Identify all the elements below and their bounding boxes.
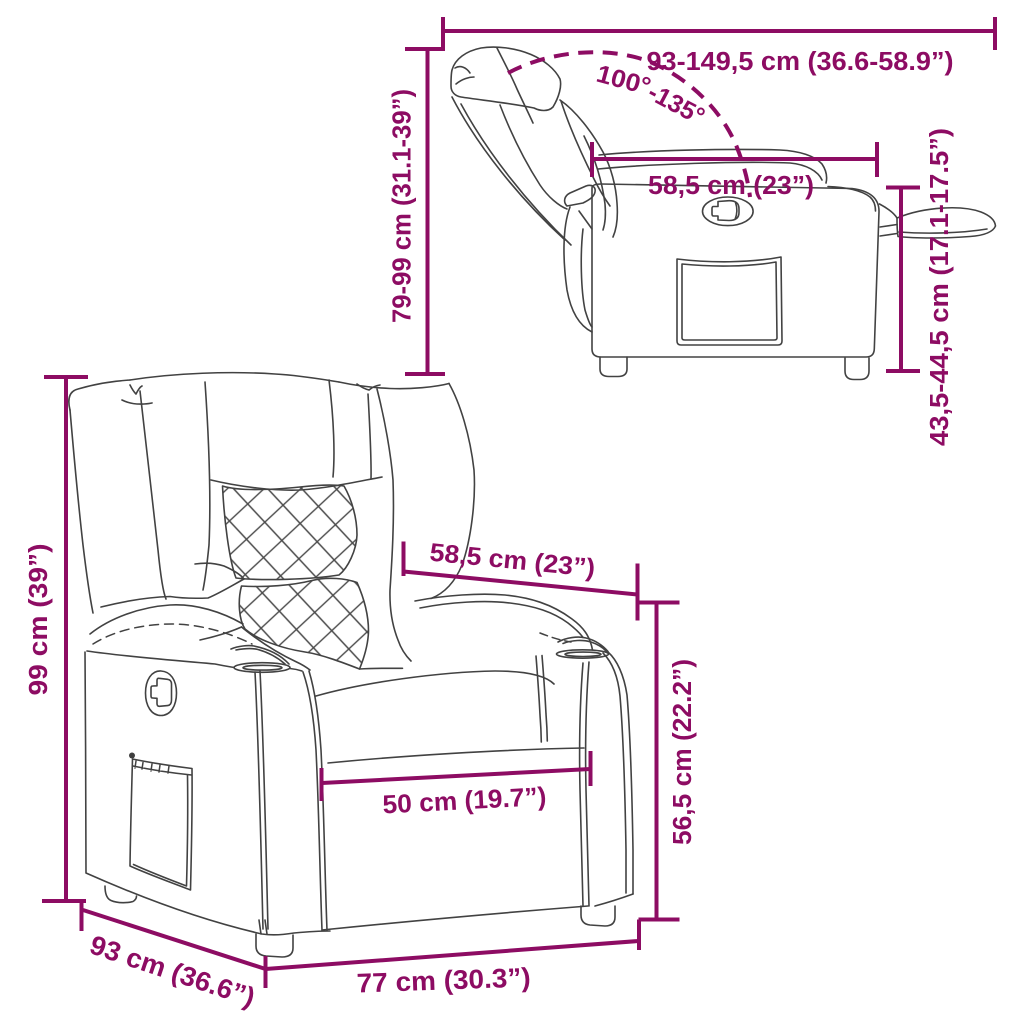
svg-text:93 cm (36.6”): 93 cm (36.6”) [86, 930, 259, 1013]
svg-text:79-99 cm (31.1-39”): 79-99 cm (31.1-39”) [389, 89, 417, 323]
svg-text:43,5-44,5 cm (17.1-17.5”): 43,5-44,5 cm (17.1-17.5”) [926, 128, 954, 446]
svg-text:50 cm (19.7”): 50 cm (19.7”) [382, 781, 547, 820]
svg-text:100°: 100° [593, 60, 653, 101]
svg-text:93-149,5 cm (36.6-58.9”): 93-149,5 cm (36.6-58.9”) [647, 48, 954, 76]
svg-text:-135°: -135° [643, 78, 709, 131]
svg-text:99 cm (39”): 99 cm (39”) [25, 544, 53, 696]
svg-text:56,5 cm (22.2”): 56,5 cm (22.2”) [669, 659, 697, 845]
svg-text:77 cm (30.3”): 77 cm (30.3”) [356, 962, 531, 998]
svg-text:58,5 cm (23”): 58,5 cm (23”) [648, 172, 814, 200]
